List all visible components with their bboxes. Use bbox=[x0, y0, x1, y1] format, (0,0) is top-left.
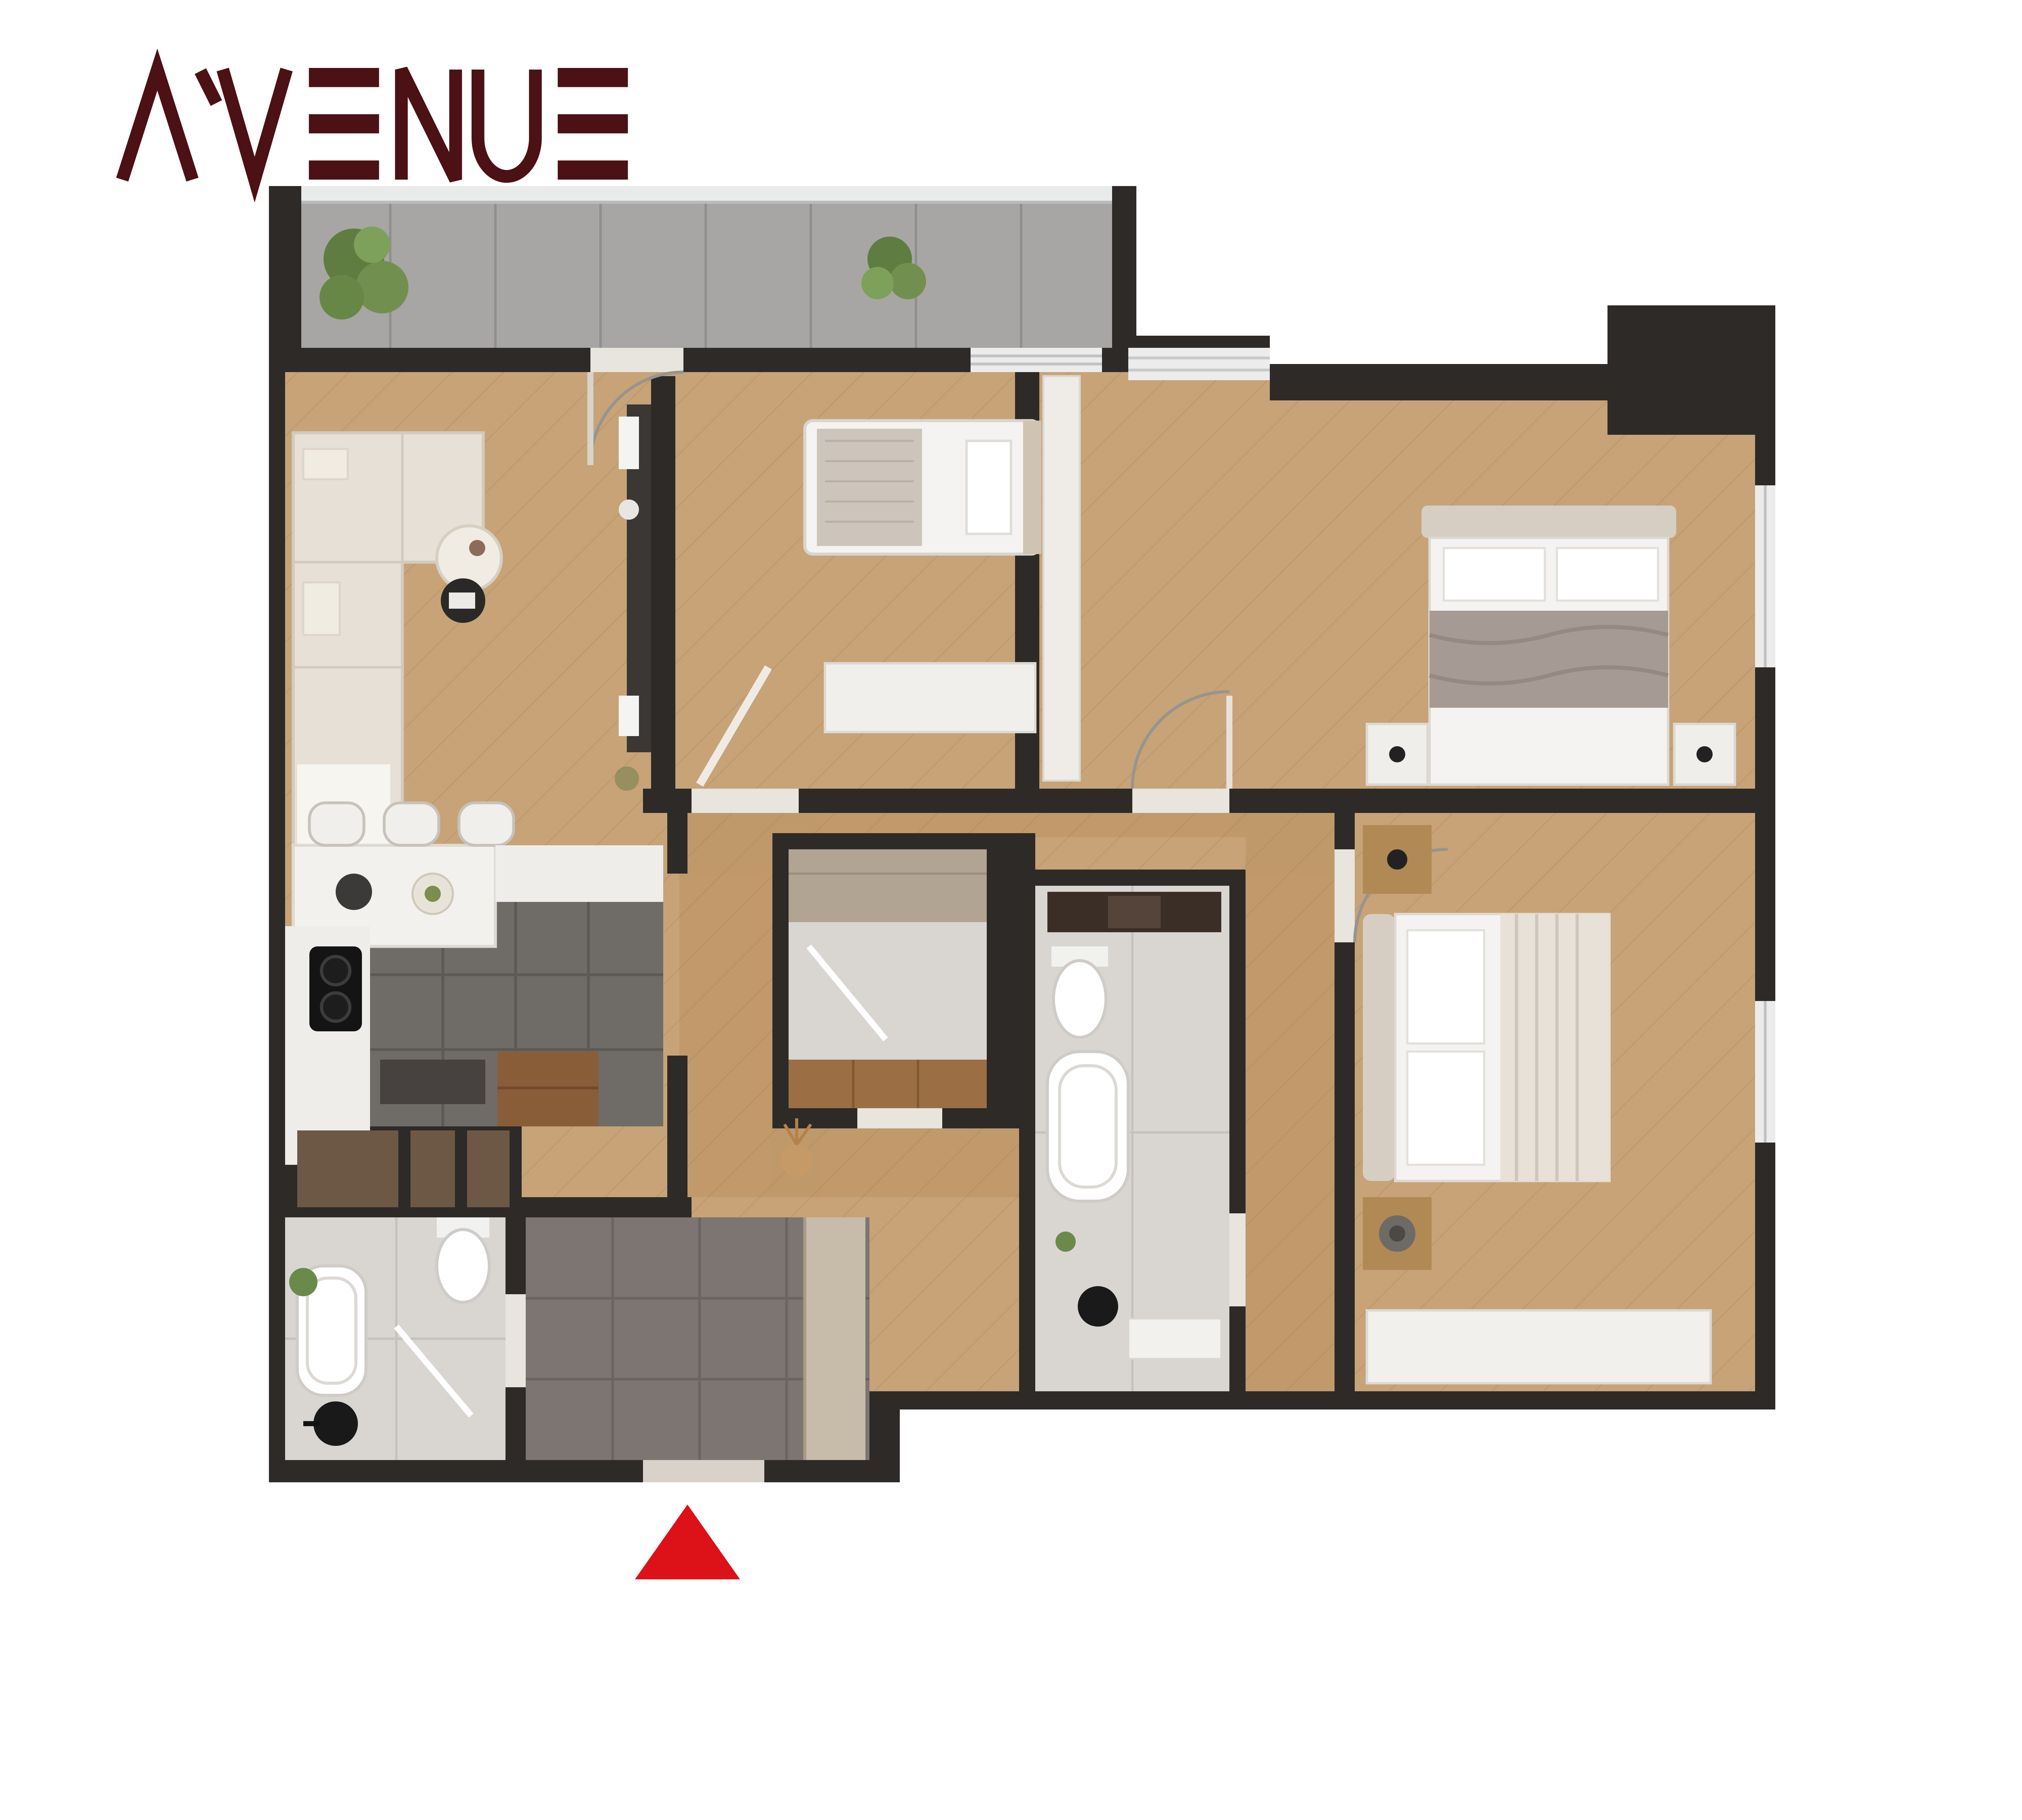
toilet bbox=[1053, 961, 1106, 1037]
pillow bbox=[1557, 548, 1658, 601]
closet bbox=[1043, 376, 1080, 781]
kitchen-dining bbox=[285, 803, 663, 1165]
floorplan-side: Davtashen bbox=[0, 0, 2022, 1820]
toilet bbox=[437, 1230, 489, 1302]
lamp-icon bbox=[1389, 746, 1405, 762]
bathroom-1 bbox=[285, 1217, 505, 1460]
decor-plant-icon bbox=[615, 766, 639, 791]
pillow bbox=[967, 441, 1011, 534]
dried-plant-icon bbox=[780, 1145, 813, 1177]
kitchen-counter-top bbox=[495, 845, 663, 902]
vanity bbox=[1128, 1318, 1221, 1359]
headboard bbox=[1363, 914, 1395, 1181]
kitchen-island bbox=[380, 1060, 485, 1104]
entry-hall bbox=[526, 1217, 869, 1460]
entrance-arrow-icon bbox=[635, 1505, 740, 1579]
pillow bbox=[1407, 1052, 1484, 1165]
lamp-icon bbox=[1387, 849, 1407, 870]
sink bbox=[313, 1401, 358, 1446]
plant-icon bbox=[1055, 1232, 1076, 1252]
plant-icon bbox=[289, 1268, 317, 1296]
desk bbox=[825, 663, 1035, 732]
bathroom-2 bbox=[1035, 886, 1229, 1391]
pillow bbox=[1407, 930, 1484, 1043]
dining-chairs bbox=[309, 803, 514, 845]
dresser bbox=[1367, 1310, 1711, 1383]
pillow bbox=[1444, 548, 1545, 601]
sink bbox=[1078, 1286, 1118, 1327]
bed-throw bbox=[1430, 611, 1668, 708]
balcony-glass bbox=[285, 186, 1128, 202]
apartment-floorplan bbox=[0, 0, 2022, 1820]
page-root: Davtashen bbox=[0, 0, 2022, 1820]
lamp-icon bbox=[1696, 746, 1713, 762]
balcony bbox=[285, 186, 1128, 360]
wardrobe bbox=[789, 849, 987, 922]
headboard bbox=[1421, 506, 1676, 538]
shower-room bbox=[789, 922, 987, 1108]
entry-closet bbox=[805, 1217, 865, 1460]
